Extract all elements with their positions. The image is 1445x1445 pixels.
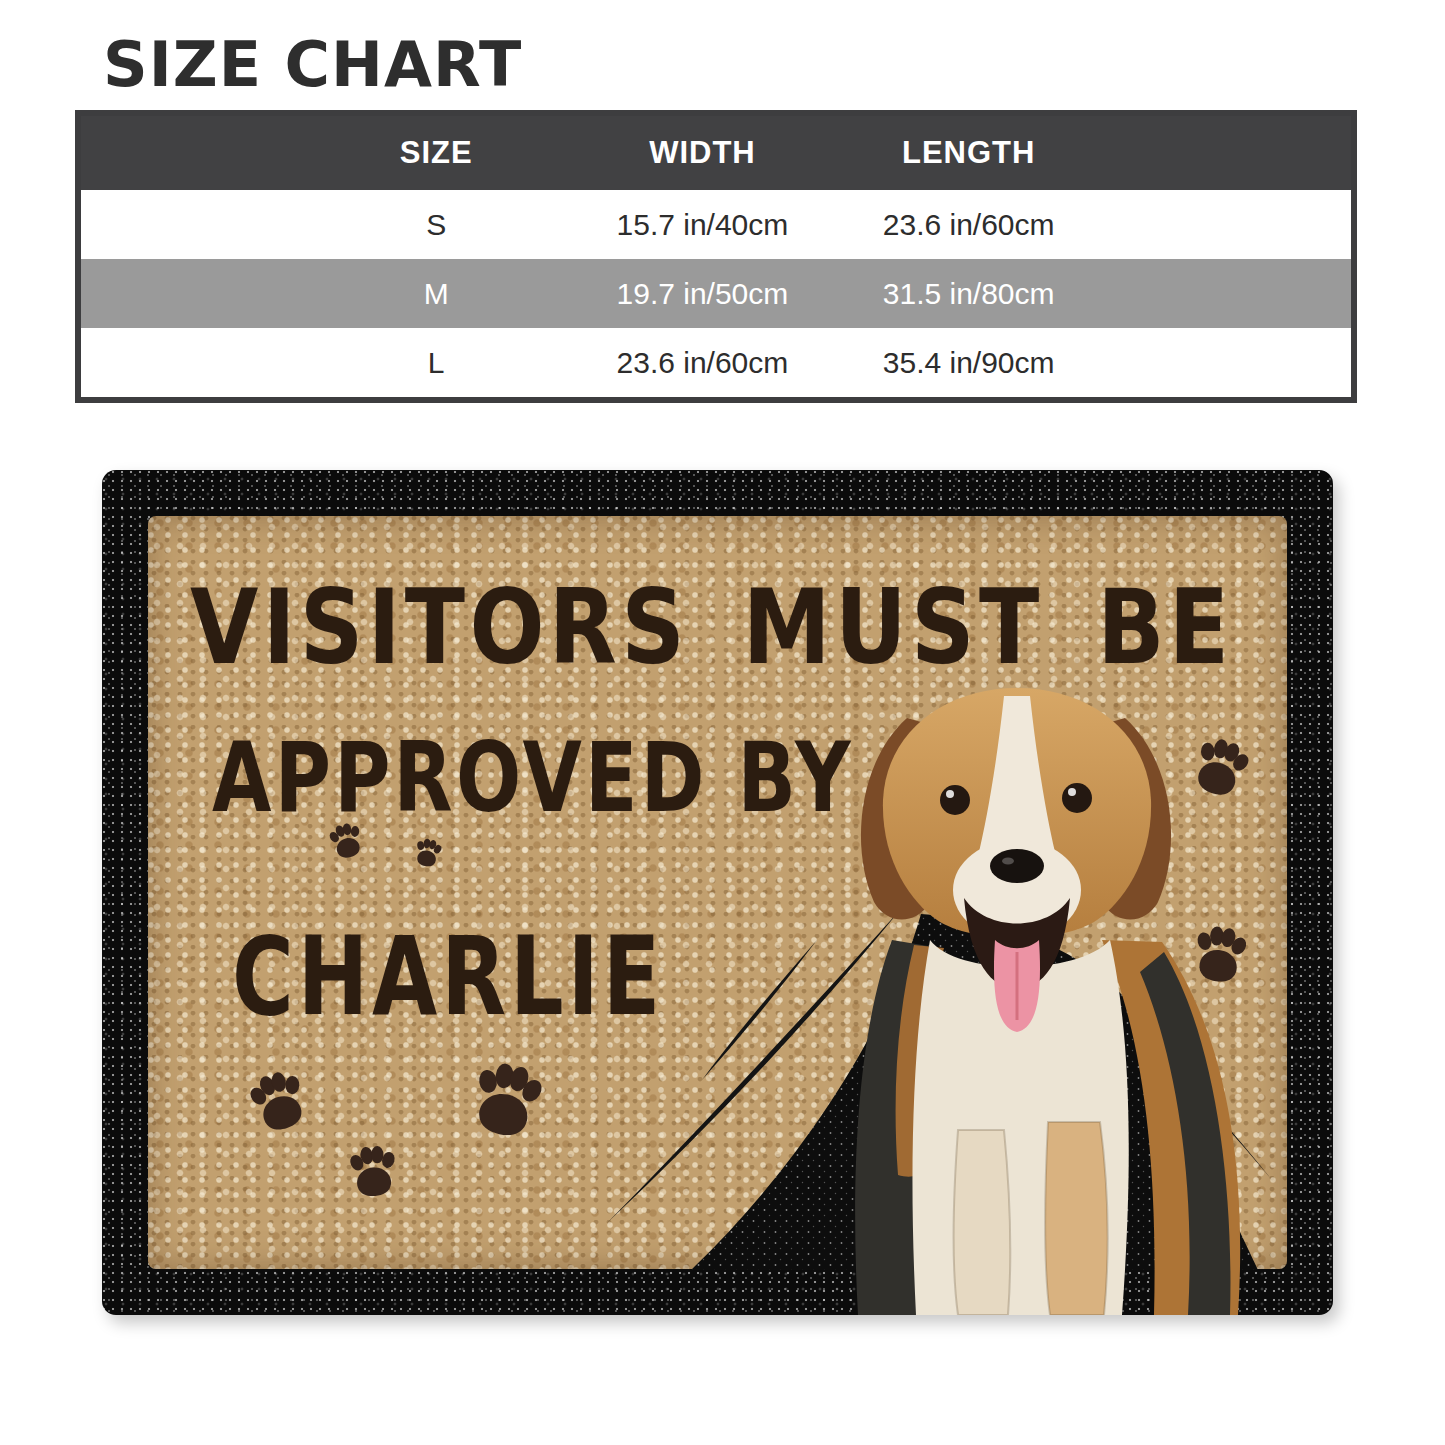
paw-print-icon (244, 1065, 314, 1136)
dog-photo (855, 688, 1240, 1315)
size-chart-table: SIZE WIDTH LENGTH S 15.7 in/40cm 23.6 in… (75, 110, 1357, 403)
length-cell: 31.5 in/80cm (836, 259, 1102, 328)
column-header-length: LENGTH (836, 113, 1102, 190)
mat-text-line-1: VISITORS MUST BE (190, 566, 1233, 688)
column-header-width: WIDTH (569, 113, 835, 190)
paw-print-icon (412, 836, 444, 868)
column-header-size: SIZE (303, 113, 569, 190)
paw-print-icon (347, 1144, 400, 1198)
width-cell: 15.7 in/40cm (569, 190, 835, 259)
table-row: M 19.7 in/50cm 31.5 in/80cm (78, 259, 1354, 328)
mat-text-pet-name: CHARLIE (232, 914, 664, 1039)
length-cell: 35.4 in/90cm (836, 328, 1102, 400)
size-chart-title: SIZE CHART (103, 28, 522, 101)
length-cell: 23.6 in/60cm (836, 190, 1102, 259)
doormat-product-image: VISITORS MUST BE APPROVED BY CHARLIE (102, 470, 1333, 1315)
paw-print-icon (1187, 733, 1255, 802)
table-row: L 23.6 in/60cm 35.4 in/90cm (78, 328, 1354, 400)
size-cell: S (303, 190, 569, 259)
mat-fold-line (702, 940, 817, 1080)
header-spacer (1102, 113, 1354, 190)
table-row: S 15.7 in/40cm 23.6 in/60cm (78, 190, 1354, 259)
width-cell: 19.7 in/50cm (569, 259, 835, 328)
size-cell: L (303, 328, 569, 400)
paw-print-icon (466, 1057, 549, 1141)
header-spacer (78, 113, 303, 190)
width-cell: 23.6 in/60cm (569, 328, 835, 400)
paw-print-icon (1190, 923, 1251, 985)
size-cell: M (303, 259, 569, 328)
mat-text-line-2: APPROVED BY (212, 722, 854, 834)
table-header-row: SIZE WIDTH LENGTH (78, 113, 1354, 190)
